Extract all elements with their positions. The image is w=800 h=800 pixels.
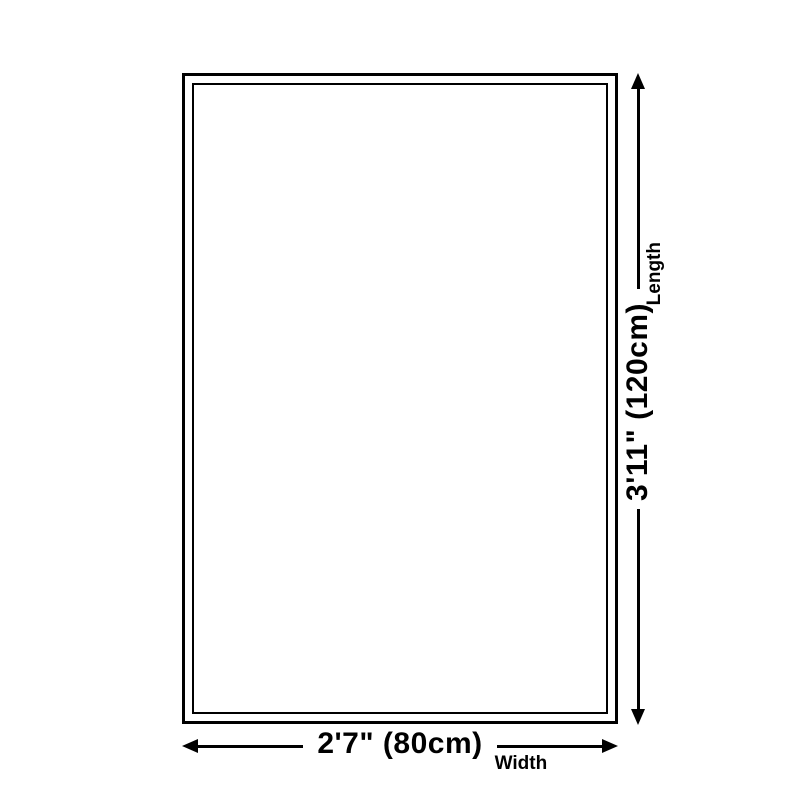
- width-dimension: 2'7" (80cm) Width: [182, 731, 618, 761]
- length-value: 3'11" (120cm): [621, 303, 655, 501]
- arrow-up-icon: [631, 73, 645, 89]
- width-value: 2'7" (80cm): [317, 727, 482, 761]
- arrow-left-icon: [182, 739, 198, 753]
- rug-outline: [182, 73, 618, 724]
- length-dimension-line-bottom: [637, 509, 640, 709]
- rug-inner-outline: [192, 83, 608, 714]
- length-dimension-line-top: [637, 89, 640, 289]
- rug-size-diagram: Length 3'11" (120cm) 2'7" (80cm) Width: [0, 0, 800, 800]
- width-label: Width: [495, 753, 548, 775]
- length-dimension: Length 3'11" (120cm): [624, 73, 652, 725]
- length-label: Length: [644, 242, 666, 305]
- arrow-right-icon: [602, 739, 618, 753]
- arrow-down-icon: [631, 709, 645, 725]
- width-dimension-line-left: [198, 745, 303, 748]
- width-dimension-line-right: [497, 745, 602, 748]
